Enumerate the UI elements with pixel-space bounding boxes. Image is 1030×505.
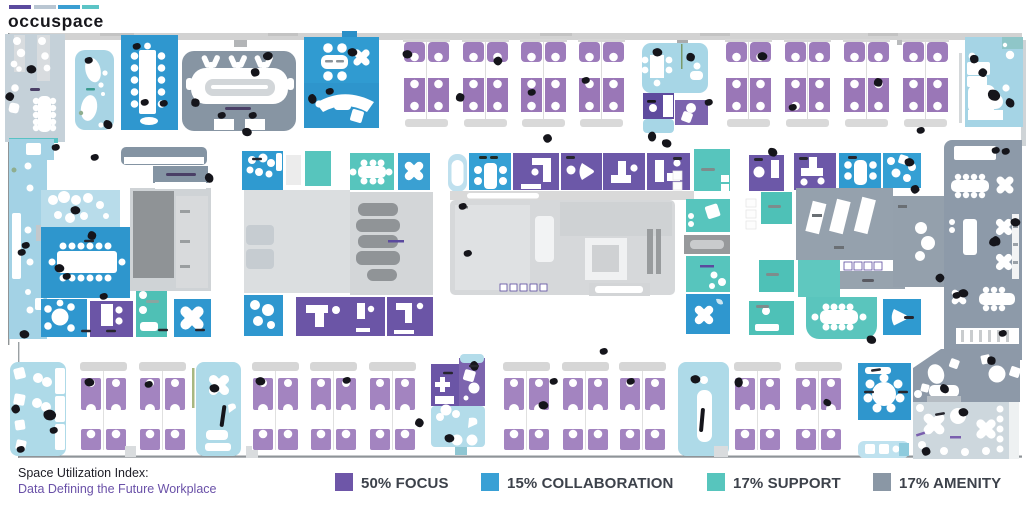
- svg-text:50% FOCUS: 50% FOCUS: [361, 475, 449, 492]
- svg-text:Space Utilization Index:: Space Utilization Index:: [18, 466, 149, 480]
- svg-text:Data Defining the Future Workp: Data Defining the Future Workplace: [18, 482, 217, 496]
- svg-text:occuspace: occuspace: [8, 11, 104, 31]
- svg-text:17% AMENITY: 17% AMENITY: [899, 475, 1001, 492]
- svg-text:15% COLLABORATION: 15% COLLABORATION: [507, 475, 673, 492]
- svg-text:17% SUPPORT: 17% SUPPORT: [733, 475, 841, 492]
